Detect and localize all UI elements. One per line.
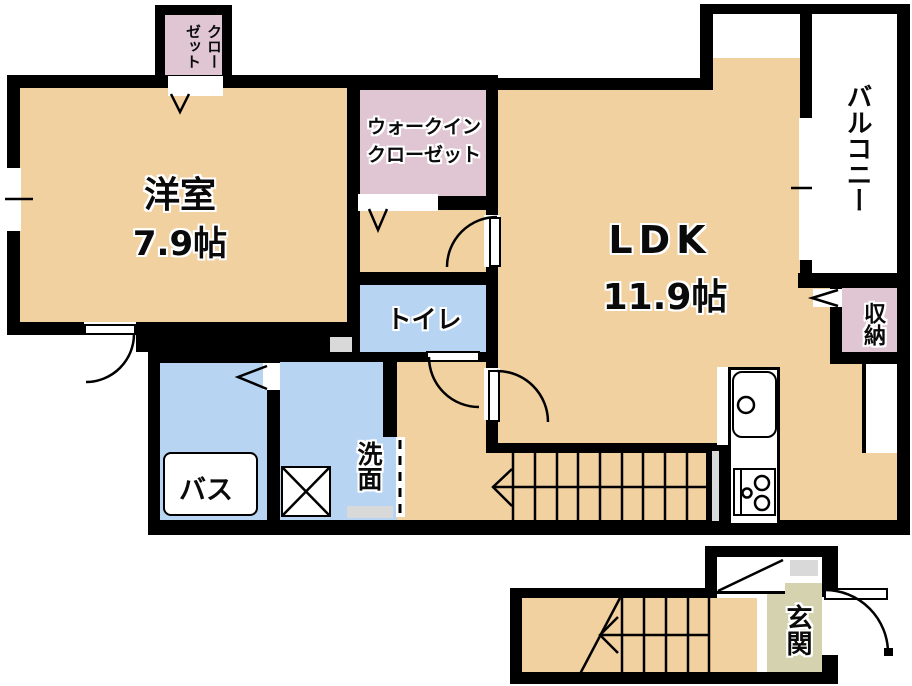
wall xyxy=(510,672,838,684)
wall xyxy=(705,546,717,598)
washroom-counter xyxy=(347,506,393,518)
wall-niche xyxy=(330,337,352,352)
entrance-label: 玄関 xyxy=(779,590,816,670)
wall xyxy=(347,272,498,285)
door-leaf xyxy=(84,324,136,335)
storage-door-opening xyxy=(813,289,842,307)
balcony-window xyxy=(799,118,813,260)
wall xyxy=(486,78,713,90)
wall xyxy=(148,350,160,535)
wall xyxy=(705,546,835,557)
void-area xyxy=(866,364,897,453)
ldk-label: LDK xyxy=(570,218,750,262)
wall xyxy=(700,4,713,90)
ldk-size: 11.9帖 xyxy=(570,268,760,320)
entrance-door-opening xyxy=(822,597,838,655)
toilet-door-leaf xyxy=(426,351,480,362)
balcony-label: バルコニー xyxy=(839,58,876,238)
door-arc-western-room xyxy=(86,334,134,382)
washroom-sliding-door xyxy=(396,437,405,517)
entrance-step-strip xyxy=(757,597,767,672)
wall xyxy=(7,322,84,335)
hallway-upper-floor xyxy=(360,210,486,272)
bath-label: バス xyxy=(166,468,246,507)
kitchen-sink xyxy=(732,371,777,438)
wall xyxy=(510,588,522,684)
door-leaf xyxy=(489,217,501,267)
wall xyxy=(822,655,838,684)
wic-door-opening xyxy=(358,194,438,211)
wall xyxy=(155,5,165,78)
floor-plan: 洋室 7.9帖 LDK 11.9帖 クローゼット ウォークイン クローゼット バ… xyxy=(0,0,912,686)
wall xyxy=(862,364,866,453)
wall xyxy=(498,443,728,453)
door-stop-tick xyxy=(884,648,893,656)
under-stairs-box xyxy=(717,557,785,594)
entrance-hall-floor xyxy=(522,598,757,672)
wall xyxy=(347,75,498,90)
hallway-floor xyxy=(397,362,486,520)
washing-machine xyxy=(281,466,331,517)
wall xyxy=(510,588,717,598)
closet-label-col2: ゼット xyxy=(183,12,204,80)
entrance-door-leaf xyxy=(824,588,888,600)
bath-door-opening xyxy=(263,363,280,390)
door-leaf xyxy=(488,370,500,422)
closet-label: クローゼット xyxy=(167,12,225,80)
wall xyxy=(798,273,910,288)
kitchen-stove xyxy=(733,468,776,516)
wall xyxy=(148,350,280,363)
wall xyxy=(148,520,910,535)
kitchen-side-strip xyxy=(717,367,728,445)
window xyxy=(5,168,21,231)
western-room-label: 洋室 xyxy=(100,166,260,218)
toilet-label: トイレ xyxy=(364,300,484,336)
wall xyxy=(897,4,910,535)
wic-label-line2: クローゼット xyxy=(350,140,498,167)
ldk-floor xyxy=(498,90,713,443)
washroom-label: 洗面 xyxy=(350,428,386,504)
closet-label-col1: クロー xyxy=(204,12,225,80)
western-room-size: 7.9帖 xyxy=(90,216,270,265)
storage-label: 収納 xyxy=(856,294,888,354)
wall xyxy=(136,322,347,352)
wall xyxy=(383,352,397,437)
stairs-side-panel xyxy=(712,451,719,521)
wic-label-line1: ウォークイン xyxy=(350,112,498,139)
shoe-step xyxy=(790,560,818,576)
